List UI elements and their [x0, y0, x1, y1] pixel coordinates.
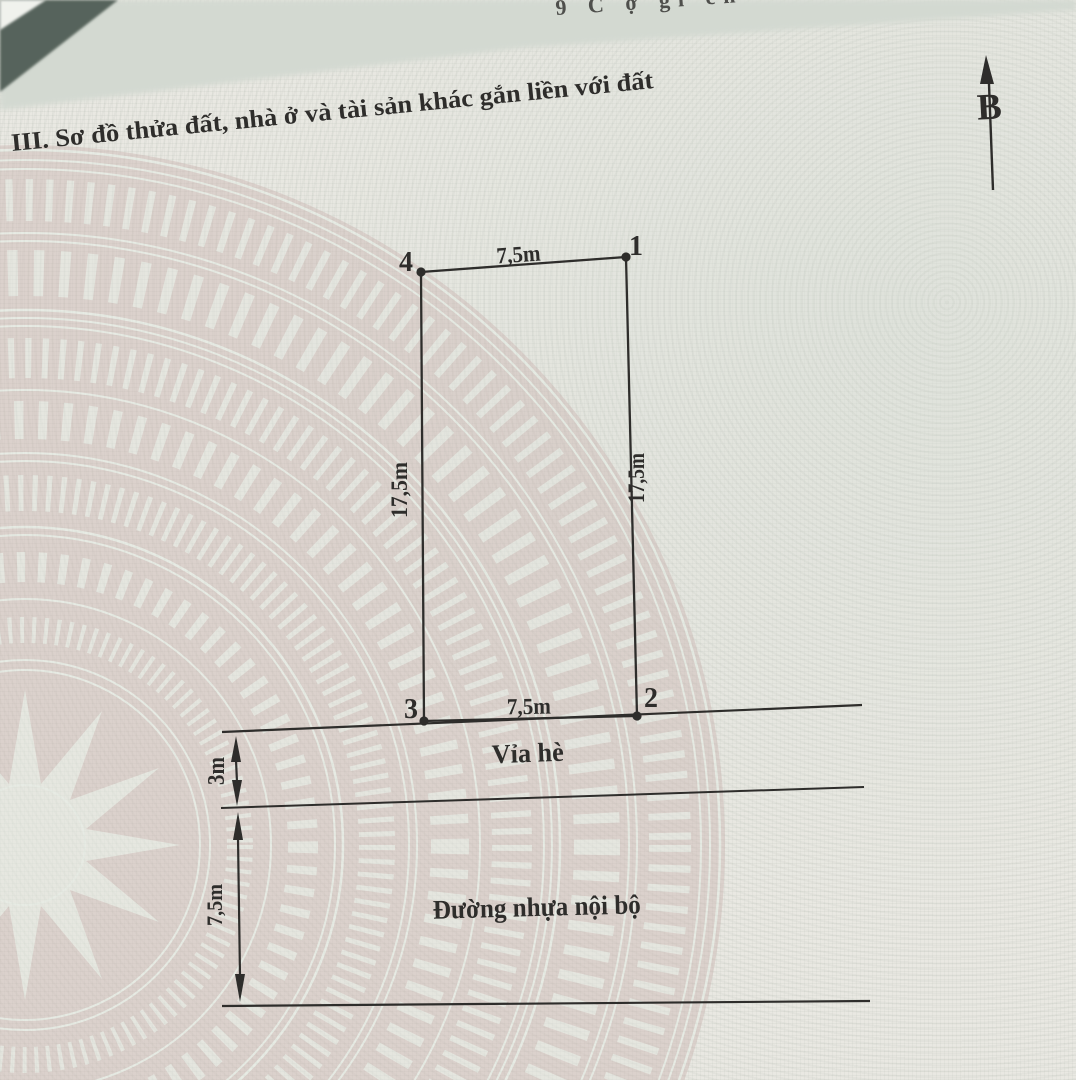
dim-right: 17,5m [624, 453, 649, 503]
dim-line [236, 760, 237, 782]
dim-left: 17,5m [387, 462, 412, 518]
sidewalk-label: Vỉa hè [491, 737, 564, 769]
land-plot-diagram: 9 C ợ gi ch III. Sơ đồ thửa đất, nhà ở v… [0, 0, 1076, 1080]
road-width-label: 7,5m [202, 884, 227, 926]
corner-label-2: 2 [644, 683, 658, 714]
dim-top: 7,5m [496, 241, 542, 269]
dim-bottom: 7,5m [507, 694, 551, 720]
bronze-drum-watermark [0, 145, 725, 1080]
certificate-page: 9 C ợ gi ch III. Sơ đồ thửa đất, nhà ở v… [0, 0, 1076, 1080]
sidewalk-width-label: 3m [204, 757, 230, 785]
north-label: B [976, 86, 1003, 128]
corner-label-1: 1 [629, 231, 643, 262]
corner-dot-4 [416, 267, 425, 276]
corner-dot-2 [632, 711, 641, 720]
north-arrow-head [980, 55, 994, 84]
corner-label-4: 4 [399, 247, 413, 278]
corner-label-3: 3 [404, 694, 418, 725]
road-label: Đường nhựa nội bộ [432, 889, 641, 924]
north-arrow: B [976, 55, 1003, 190]
